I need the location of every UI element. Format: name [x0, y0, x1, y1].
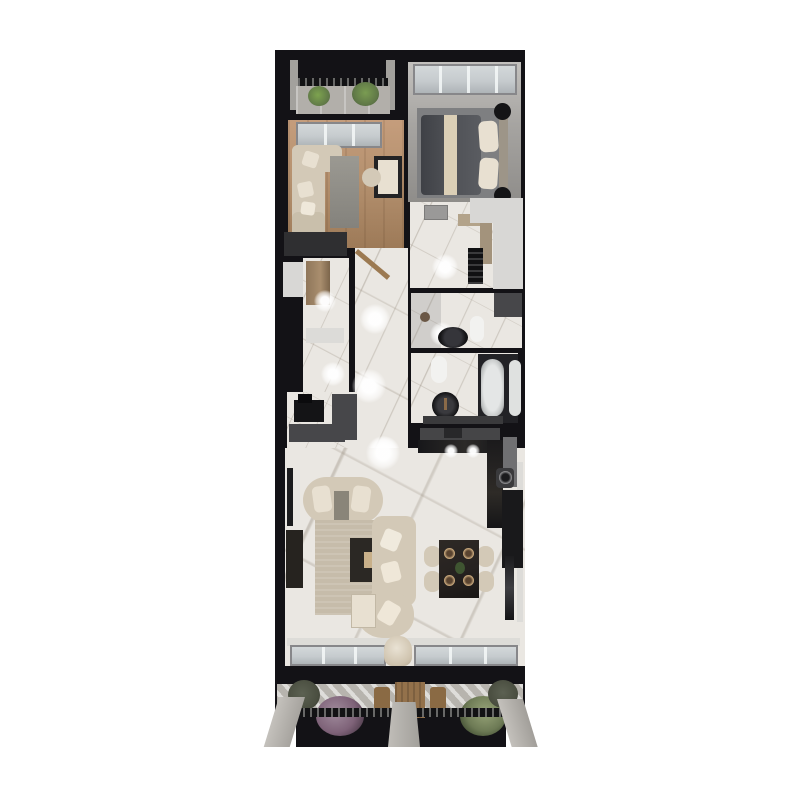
vessel-sink — [438, 327, 468, 348]
curtain — [384, 636, 412, 666]
loveseat-cushion — [311, 485, 332, 513]
window-mullion — [439, 66, 442, 93]
shelving-tower — [468, 248, 483, 284]
sofa-pillow — [300, 201, 316, 216]
bath-partition — [494, 293, 522, 317]
entry-landing — [283, 262, 305, 297]
bedroom-runner-rug — [330, 156, 359, 228]
adjacent-space — [493, 198, 523, 289]
table-centerpiece — [455, 562, 465, 574]
place-setting — [444, 548, 455, 559]
window-mullion — [324, 124, 327, 146]
kitchen-hood — [444, 428, 462, 438]
nightstand — [494, 103, 511, 120]
hallway-floor — [355, 248, 408, 448]
side-chest — [351, 594, 376, 628]
window-mullion — [354, 647, 357, 664]
ceiling-light — [432, 254, 458, 280]
toilet — [470, 316, 484, 342]
window-mullion — [484, 647, 487, 664]
bathtub — [481, 359, 504, 417]
south-window — [290, 645, 386, 666]
dining-chair — [477, 546, 494, 567]
window-mullion — [495, 66, 498, 93]
desk-top — [378, 160, 398, 194]
ceiling-light — [444, 444, 458, 458]
bed-blanket — [444, 115, 457, 195]
loveseat-throw — [334, 491, 349, 521]
place-setting — [463, 548, 474, 559]
place-setting — [444, 575, 455, 586]
primary-bedroom-window — [413, 64, 517, 95]
shower-head — [420, 312, 430, 322]
bed-pillow — [478, 157, 499, 189]
ceiling-light — [366, 436, 400, 470]
sink-faucet — [444, 398, 447, 410]
nook-counter — [289, 424, 345, 442]
balcony-plant-icon — [352, 82, 379, 106]
nook-desk-gadget — [298, 394, 312, 403]
window-mullion — [467, 66, 470, 93]
dining-chair — [477, 571, 494, 592]
terrace-pier-middle — [388, 702, 420, 747]
ceiling-light — [466, 444, 480, 458]
tv-console — [286, 530, 303, 588]
sofa-pillow — [297, 181, 315, 199]
ceiling-light — [321, 362, 345, 386]
window-mullion — [449, 647, 452, 664]
place-setting — [463, 575, 474, 586]
window-mullion — [352, 124, 355, 146]
balcony-plant-icon — [308, 86, 330, 106]
ceiling-vent — [424, 205, 448, 220]
ceiling-light — [352, 369, 386, 403]
wall-tv — [287, 468, 293, 526]
headboard-bench — [499, 114, 508, 198]
low-wardrobe — [284, 232, 347, 256]
mirror-panel — [505, 556, 514, 620]
loveseat-cushion — [350, 485, 371, 513]
kitchen-sink-bowl — [499, 471, 512, 484]
ceiling-light — [314, 290, 336, 312]
vanity-ledge — [423, 416, 503, 424]
bed-pillow — [478, 120, 499, 152]
window-mullion — [322, 647, 325, 664]
south-window — [414, 645, 518, 666]
ceiling-light — [360, 304, 390, 334]
toilet — [431, 356, 447, 383]
shower-tray — [509, 360, 521, 416]
nook-desk-device — [294, 400, 324, 422]
floor-plan-scene — [0, 0, 800, 800]
closet-mat — [306, 328, 344, 343]
desk-chair — [362, 168, 381, 187]
